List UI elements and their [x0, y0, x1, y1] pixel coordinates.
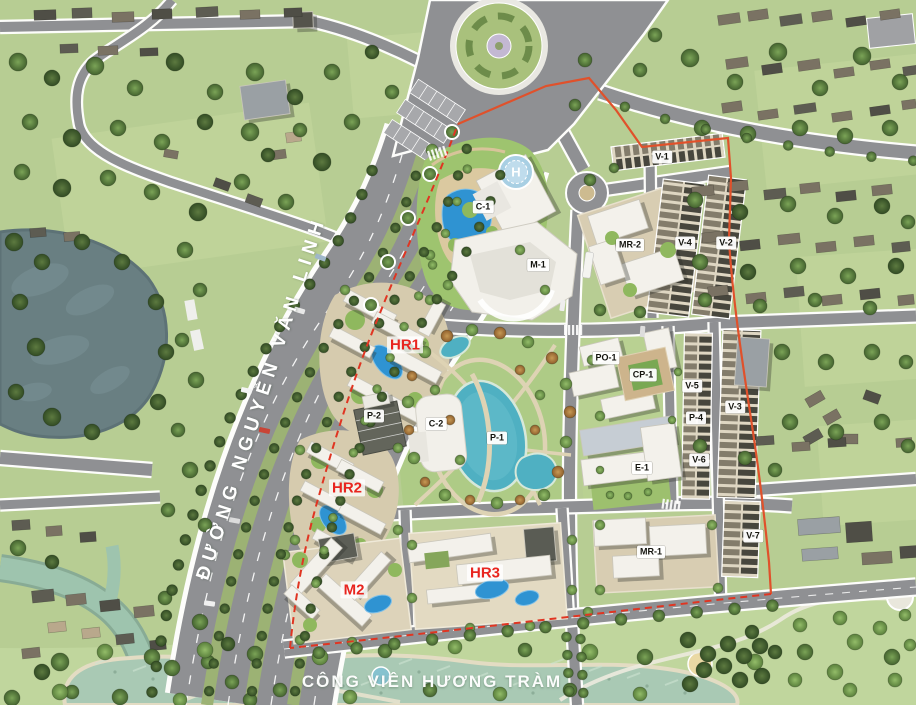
map-render — [0, 0, 916, 705]
masterplan-map: ĐƯỜNG NGUYỄN VĂN LINH CÔNG VIÊN HƯƠNG TR… — [0, 0, 916, 705]
